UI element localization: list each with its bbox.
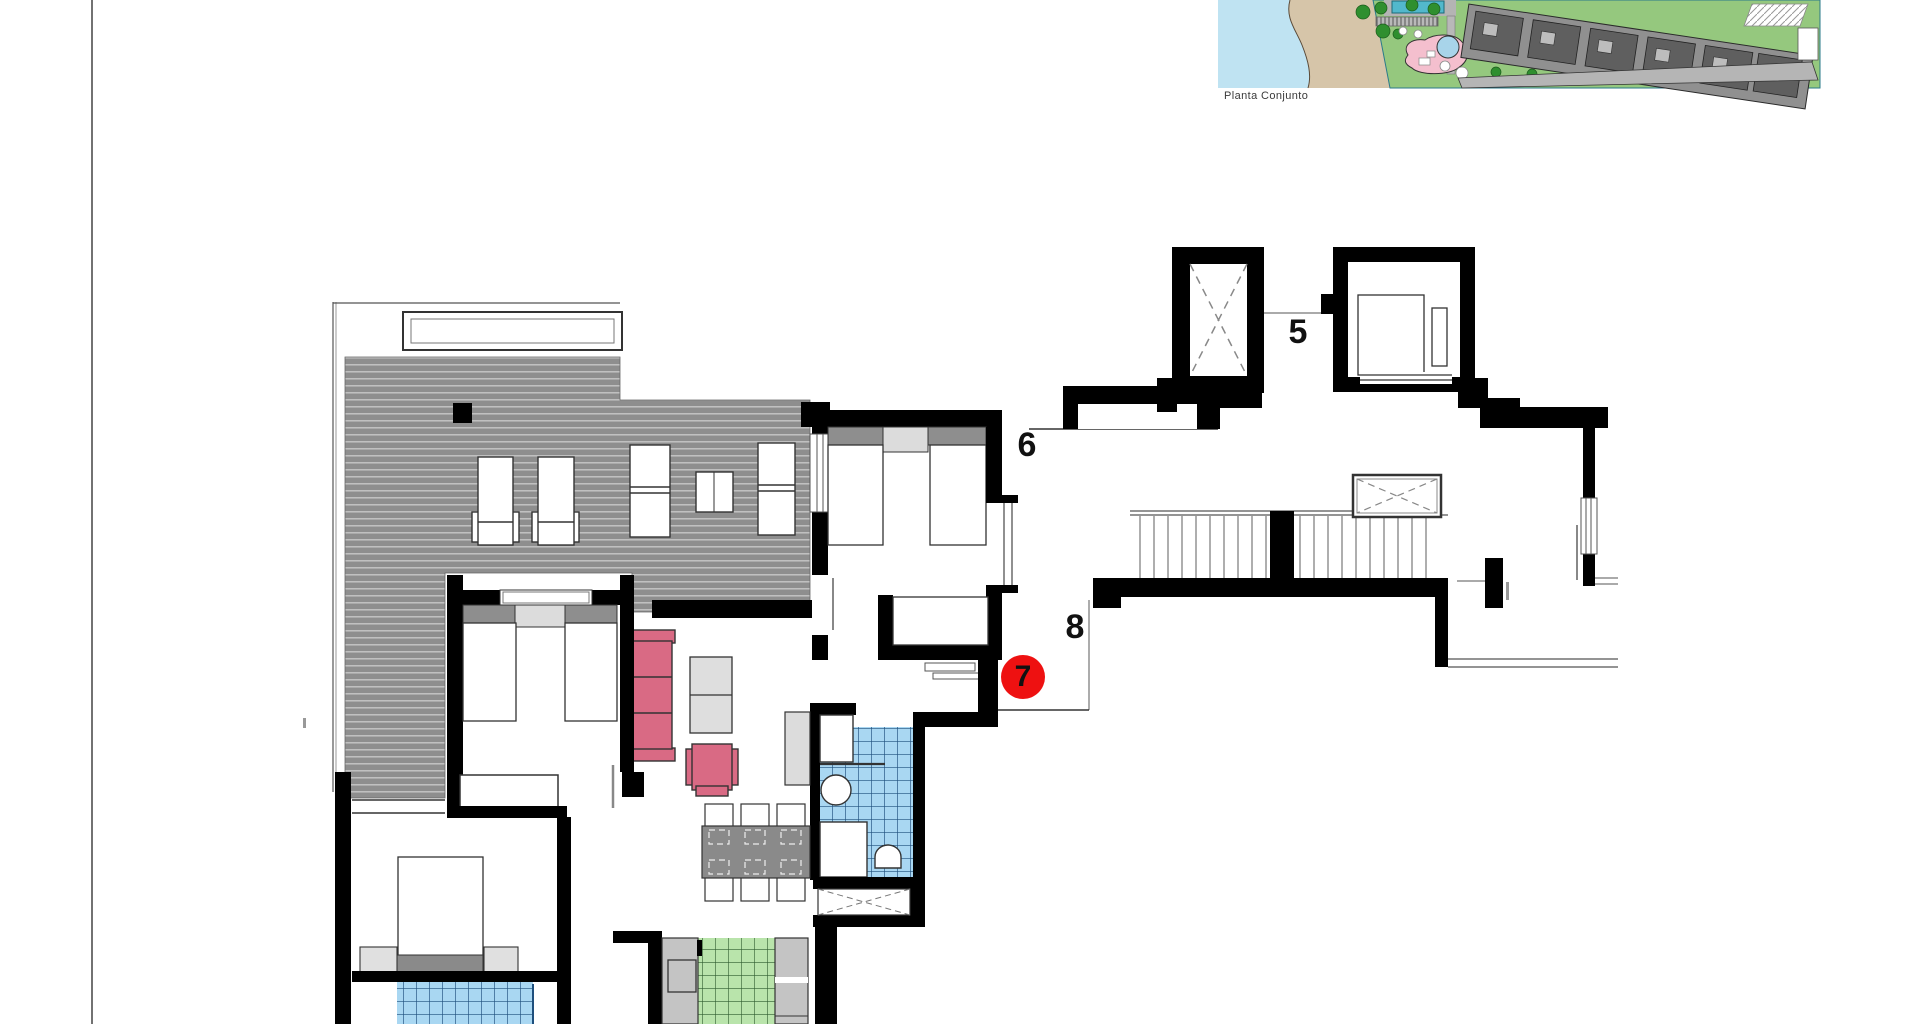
dining-table [702,826,810,878]
living-room [613,600,812,808]
double-bed [398,857,483,960]
bathroom-floor [397,982,533,1024]
bed-footboard [397,955,483,972]
selected-unit-number: 7 [1015,660,1032,694]
deck-chair [758,443,795,535]
site-plan-thumbnail [1218,0,1820,109]
stair-skylight [1353,475,1441,517]
elevator-shaft [1172,247,1264,393]
kitchen-floor [698,938,775,1024]
nightstand [360,947,397,973]
vanity [820,715,853,762]
shower-basin [821,775,851,805]
bed [930,445,986,545]
kitchen [613,927,837,1024]
exterior-stepped-wall [1458,378,1608,586]
appliance [668,960,696,992]
coffee-table [690,657,732,733]
closet [460,775,558,810]
armchair [686,744,738,796]
sun-lounger [472,457,519,545]
terrace-deck [345,357,810,798]
sun-lounger [532,457,579,545]
terrace-column [453,403,472,423]
deck-chair [630,445,670,537]
nightstand [484,947,518,973]
bed [828,445,883,545]
pillar [1485,558,1503,608]
floorplan-sheet: 5 6 8 7 Planta Conjunto [0,0,1920,1024]
parking-area [1744,4,1808,26]
selected-unit-badge[interactable]: 7 [1001,655,1045,699]
bathroom [785,648,998,927]
bed [565,623,617,721]
window [1581,498,1597,554]
unit-label-5: 5 [1283,315,1313,349]
toilet [875,845,901,868]
elevator-car [1358,295,1424,375]
bedroom-top [801,402,1018,679]
desk [893,597,988,645]
planter-box [403,312,622,350]
hall-wardrobe [785,712,810,785]
floor-plan [303,247,1618,1024]
elevator-machine-room [1321,247,1475,392]
dining-area [702,804,810,901]
outbuilding [1798,28,1818,60]
round-pool [1437,36,1459,58]
unit-label-8: 8 [1060,610,1090,644]
floorplan-drawing [0,0,1920,1024]
bed [463,623,516,721]
site-plan-caption: Planta Conjunto [1224,90,1308,102]
staircase [1093,511,1448,667]
unit-label-6: 6 [1012,428,1042,462]
shower-tray [820,822,867,877]
bedroom-left [447,575,634,818]
